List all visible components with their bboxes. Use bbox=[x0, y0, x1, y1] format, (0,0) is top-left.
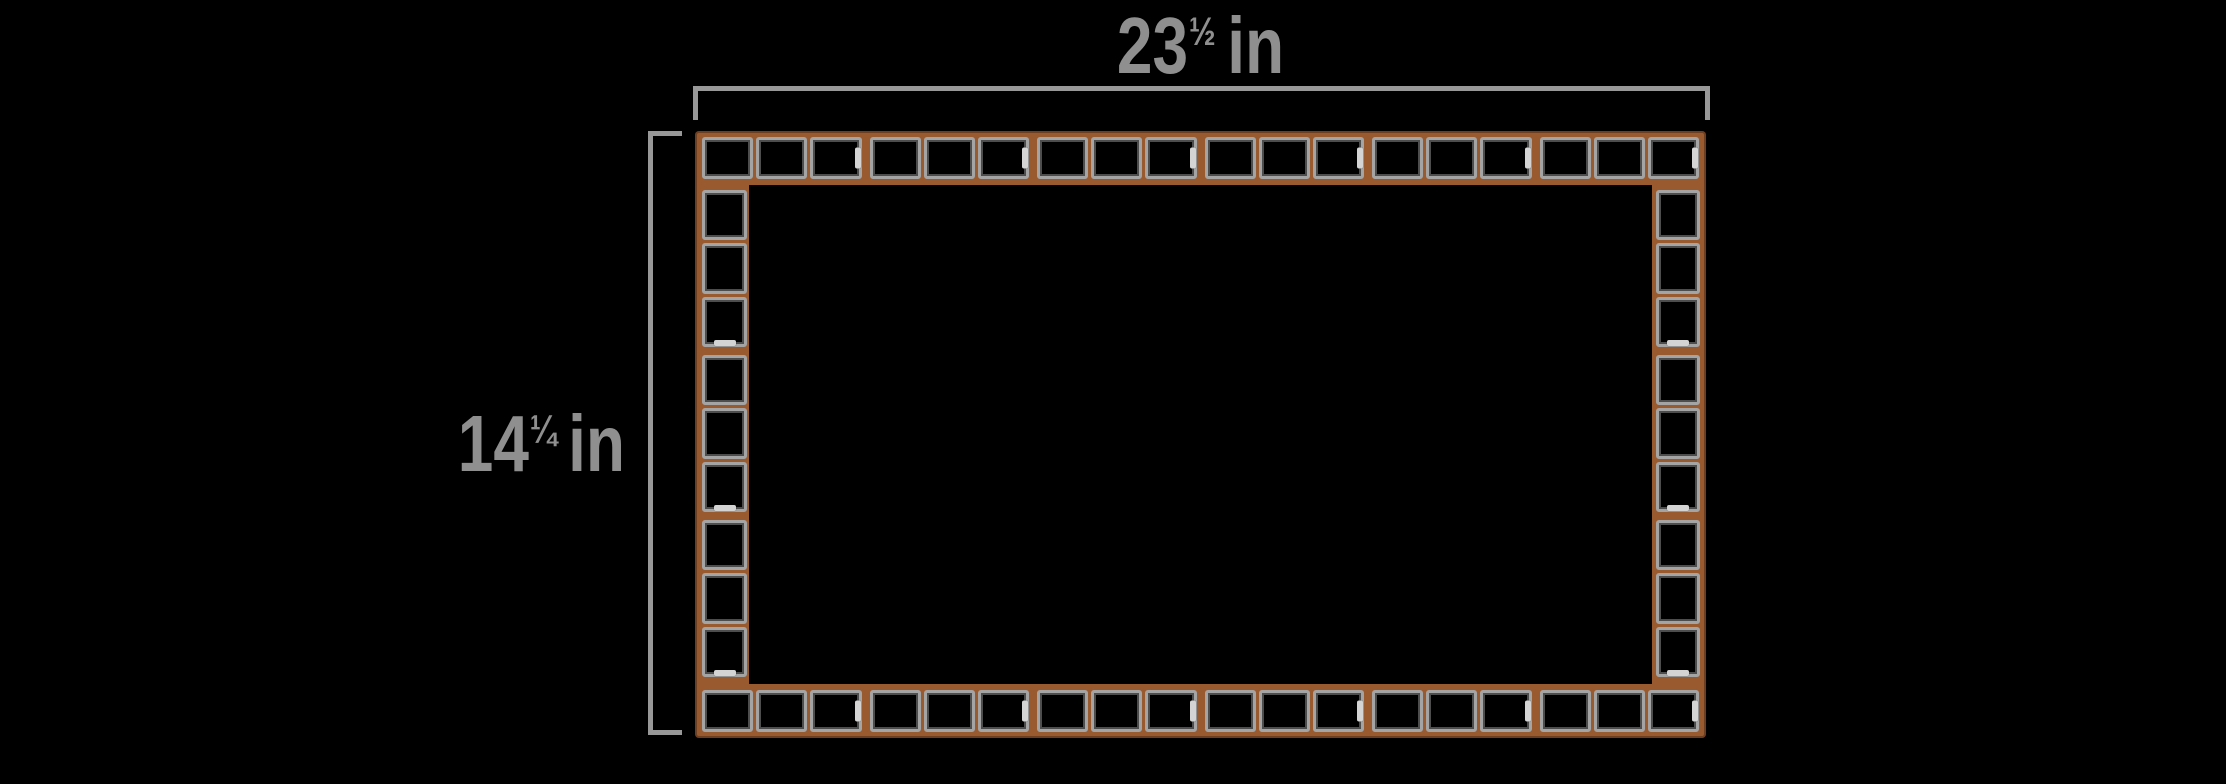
tile bbox=[1656, 190, 1700, 240]
tile bbox=[1313, 690, 1364, 732]
spacer-tab bbox=[1357, 148, 1363, 169]
tile bbox=[924, 137, 975, 179]
tile bbox=[702, 462, 747, 512]
tile bbox=[1372, 137, 1423, 179]
tile-group bbox=[1540, 690, 1700, 732]
width-unit: in bbox=[1227, 1, 1284, 90]
tile bbox=[978, 137, 1029, 179]
tile bbox=[1480, 690, 1531, 732]
tile bbox=[1259, 690, 1310, 732]
tile-group bbox=[1372, 690, 1532, 732]
tile-group bbox=[1372, 137, 1532, 179]
tile-group bbox=[1205, 690, 1365, 732]
tile bbox=[1145, 137, 1196, 179]
tile-group bbox=[870, 137, 1030, 179]
tile bbox=[1594, 690, 1645, 732]
tile bbox=[702, 190, 747, 240]
tile bbox=[1656, 520, 1700, 570]
tile bbox=[756, 137, 807, 179]
tile bbox=[1540, 690, 1591, 732]
tile bbox=[1656, 573, 1700, 623]
tile-group bbox=[702, 137, 862, 179]
tile bbox=[1426, 137, 1477, 179]
tile bbox=[810, 690, 861, 732]
tile bbox=[1656, 408, 1700, 458]
tile bbox=[702, 520, 747, 570]
spacer-tab bbox=[1667, 340, 1689, 346]
height-fraction: ¼ bbox=[530, 408, 557, 452]
tile-column-left bbox=[702, 190, 747, 677]
tile bbox=[1091, 137, 1142, 179]
tile bbox=[1313, 137, 1364, 179]
spacer-tab bbox=[1692, 701, 1698, 722]
tile bbox=[1205, 137, 1256, 179]
spacer-tab bbox=[1022, 148, 1028, 169]
tile-group bbox=[702, 520, 747, 677]
tile-group bbox=[1656, 520, 1700, 677]
tile bbox=[1656, 462, 1700, 512]
tile bbox=[870, 137, 921, 179]
tile-group bbox=[870, 690, 1030, 732]
spacer-tab bbox=[855, 148, 861, 169]
tile-frame bbox=[695, 131, 1706, 738]
spacer-tab bbox=[1525, 701, 1531, 722]
width-dimension-label: 23½in bbox=[796, 6, 1605, 86]
height-unit: in bbox=[568, 399, 625, 488]
spacer-tab bbox=[1525, 148, 1531, 169]
tile-group bbox=[1037, 137, 1197, 179]
tile bbox=[978, 690, 1029, 732]
tile-row-bottom bbox=[702, 690, 1699, 732]
spacer-tab bbox=[714, 670, 736, 676]
spacer-tab bbox=[1190, 148, 1196, 169]
tile bbox=[702, 627, 747, 677]
tile-group bbox=[702, 355, 747, 512]
tile bbox=[1648, 690, 1699, 732]
tile bbox=[1091, 690, 1142, 732]
spacer-tab bbox=[714, 340, 736, 346]
tile-row-top bbox=[702, 137, 1699, 179]
tile bbox=[1037, 690, 1088, 732]
tile bbox=[1205, 690, 1256, 732]
spacer-tab bbox=[1357, 701, 1363, 722]
tile-group bbox=[1656, 355, 1700, 512]
tile bbox=[702, 408, 747, 458]
tile bbox=[1656, 627, 1700, 677]
tile bbox=[756, 690, 807, 732]
spacer-tab bbox=[1190, 701, 1196, 722]
width-fraction: ½ bbox=[1189, 10, 1216, 54]
tile-group bbox=[1037, 690, 1197, 732]
tile bbox=[1259, 137, 1310, 179]
tile bbox=[1594, 137, 1645, 179]
width-dimension-bracket bbox=[693, 86, 1710, 120]
tile bbox=[1540, 137, 1591, 179]
tile-column-right bbox=[1656, 190, 1700, 677]
tile bbox=[702, 573, 747, 623]
tile-group bbox=[702, 690, 862, 732]
tile bbox=[1656, 243, 1700, 293]
spacer-tab bbox=[1667, 505, 1689, 511]
tile bbox=[1656, 297, 1700, 347]
tile bbox=[924, 690, 975, 732]
spacer-tab bbox=[1667, 670, 1689, 676]
tile bbox=[1372, 690, 1423, 732]
tile bbox=[1037, 137, 1088, 179]
tile-group bbox=[1540, 137, 1700, 179]
tile-group bbox=[702, 190, 747, 347]
tile-group bbox=[1205, 137, 1365, 179]
frame-opening bbox=[749, 185, 1652, 684]
tile bbox=[702, 243, 747, 293]
tile bbox=[1480, 137, 1531, 179]
tile-group bbox=[1656, 190, 1700, 347]
spacer-tab bbox=[1692, 148, 1698, 169]
tile bbox=[870, 690, 921, 732]
spacer-tab bbox=[714, 505, 736, 511]
tile bbox=[702, 690, 753, 732]
tile bbox=[702, 297, 747, 347]
diagram-canvas: 23½in 14¼in bbox=[0, 0, 2226, 784]
tile bbox=[1145, 690, 1196, 732]
spacer-tab bbox=[1022, 701, 1028, 722]
width-whole-number: 23 bbox=[1117, 1, 1188, 90]
height-whole-number: 14 bbox=[458, 399, 529, 488]
tile bbox=[1426, 690, 1477, 732]
height-dimension-label: 14¼in bbox=[241, 404, 625, 484]
height-dimension-bracket bbox=[648, 131, 682, 735]
tile bbox=[702, 137, 753, 179]
tile bbox=[702, 355, 747, 405]
tile bbox=[810, 137, 861, 179]
tile bbox=[1648, 137, 1699, 179]
spacer-tab bbox=[855, 701, 861, 722]
tile bbox=[1656, 355, 1700, 405]
